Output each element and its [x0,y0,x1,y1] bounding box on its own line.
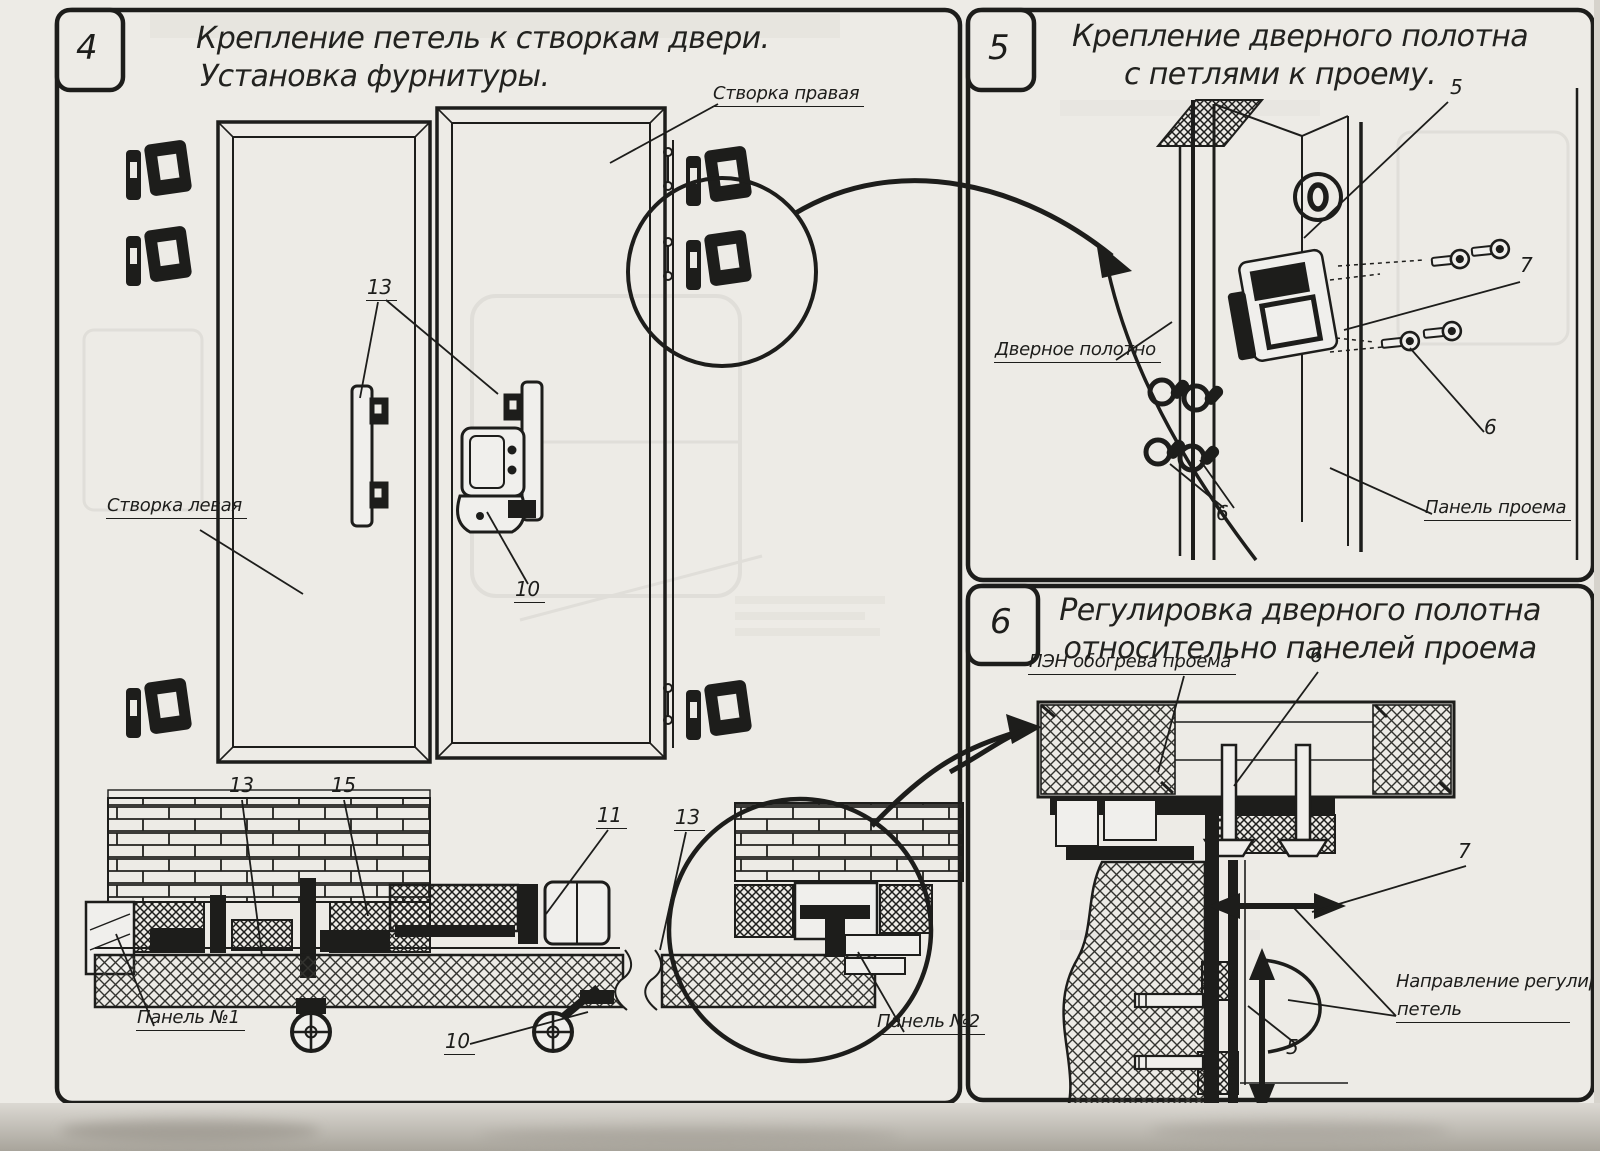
technical-drawing-canvas [0,0,1600,1151]
scanned-technical-drawing: 4 5 6 Крепление петель к створкам двери.… [0,0,1600,1151]
callout-7-adjust: 7 [1458,840,1470,863]
scan-smudge [1150,1122,1450,1140]
callout-10-latch: 10 [514,578,545,603]
callout-6-screws: 6 [1484,416,1496,439]
scan-smudge [480,1128,900,1144]
label-pen-heater: ПЭН обогрева проема [1028,652,1236,675]
label-leaf-right: Створка правая [712,84,864,107]
panel5-number: 5 [988,28,1010,68]
callout-15-section: 15 [330,774,361,799]
panel6-title-line1: Регулировка дверного полотна [1055,592,1545,630]
panel4-number: 4 [76,28,98,68]
label-door-leaf: Дверное полотно [994,340,1161,363]
scan-smudge [60,1120,320,1142]
panel4-title-line2: Установка фурнитуры. [200,58,549,96]
p4-hinges [126,139,752,740]
callout-6-washers: 6 [1216,502,1228,525]
callout-11-section: 11 [596,804,627,829]
p5-door-iso [1108,88,1577,560]
p4-strike-plates-latch [352,382,542,532]
callout-10-section: 10 [444,1030,475,1055]
label-adjust-direction-line1: Направление регулировки [1396,972,1600,993]
label-panel-no2: Панель №2 [876,1012,985,1035]
callout-13-plates: 13 [366,276,397,301]
label-leaf-left: Створка левая [106,496,247,519]
panel5-title-line2: с петлями к проему. [1040,56,1520,94]
callout-13-section-right: 13 [674,806,705,831]
callout-13-section-left: 13 [228,774,259,799]
p4-door-leaves [218,108,673,762]
scan-edge-shadow [1594,0,1600,1103]
callout-5-adjust: 5 [1286,1036,1298,1059]
label-panel-no1: Панель №1 [136,1008,245,1031]
callout-6-bolt: 6 [1310,644,1322,667]
label-opening-panel: Панель проема [1424,498,1571,521]
p4-detail-circle-hinges [628,178,1132,366]
panel4-title-line1: Крепление петель к створкам двери. [196,20,769,58]
panel5-title-line1: Крепление дверного полотна [1060,18,1540,56]
label-adjust-direction-line2: петель [1396,1000,1570,1023]
callout-5-hinge: 5 [1450,76,1462,99]
panel6-number: 6 [990,602,1012,642]
callout-7-hinge: 7 [1520,254,1532,277]
p6-adjustment-section [950,702,1454,1125]
